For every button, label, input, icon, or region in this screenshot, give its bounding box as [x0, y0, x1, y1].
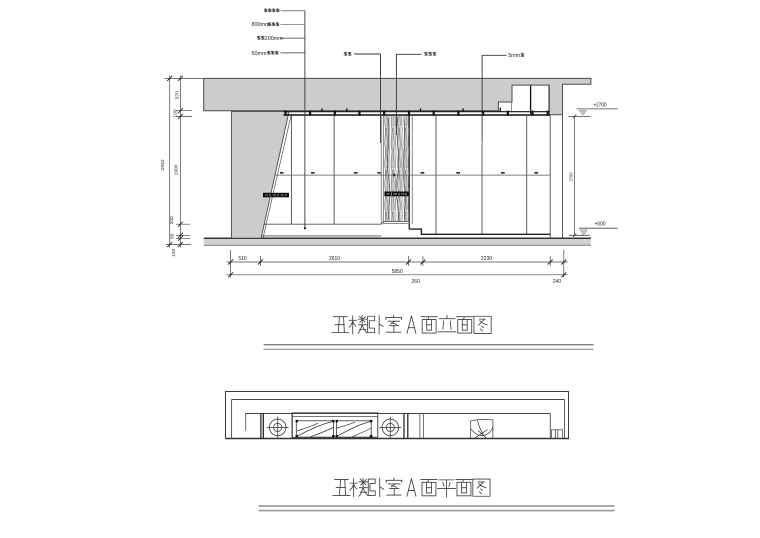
- svg-text:+000: +000: [595, 221, 606, 227]
- svg-text:50mm: 50mm: [252, 51, 267, 57]
- svg-text:+2700: +2700: [594, 103, 607, 109]
- svg-text:50: 50: [169, 233, 175, 239]
- svg-text:5mm: 5mm: [508, 53, 520, 59]
- svg-text:120: 120: [171, 248, 177, 256]
- svg-text:1900: 1900: [174, 164, 180, 175]
- svg-text:2700: 2700: [569, 172, 574, 182]
- svg-text:2940: 2940: [160, 159, 166, 170]
- svg-text:570: 570: [174, 91, 180, 99]
- svg-text:2610: 2610: [329, 256, 340, 262]
- svg-text:5850: 5850: [392, 269, 403, 275]
- svg-text:260: 260: [412, 279, 421, 285]
- svg-text:100: 100: [173, 109, 179, 117]
- svg-text:800mm: 800mm: [252, 22, 270, 28]
- svg-text:510: 510: [238, 256, 247, 262]
- svg-text:200mm: 200mm: [265, 36, 283, 42]
- svg-text:240: 240: [553, 279, 562, 285]
- svg-text:2230: 2230: [481, 256, 492, 262]
- svg-text:200: 200: [169, 216, 175, 224]
